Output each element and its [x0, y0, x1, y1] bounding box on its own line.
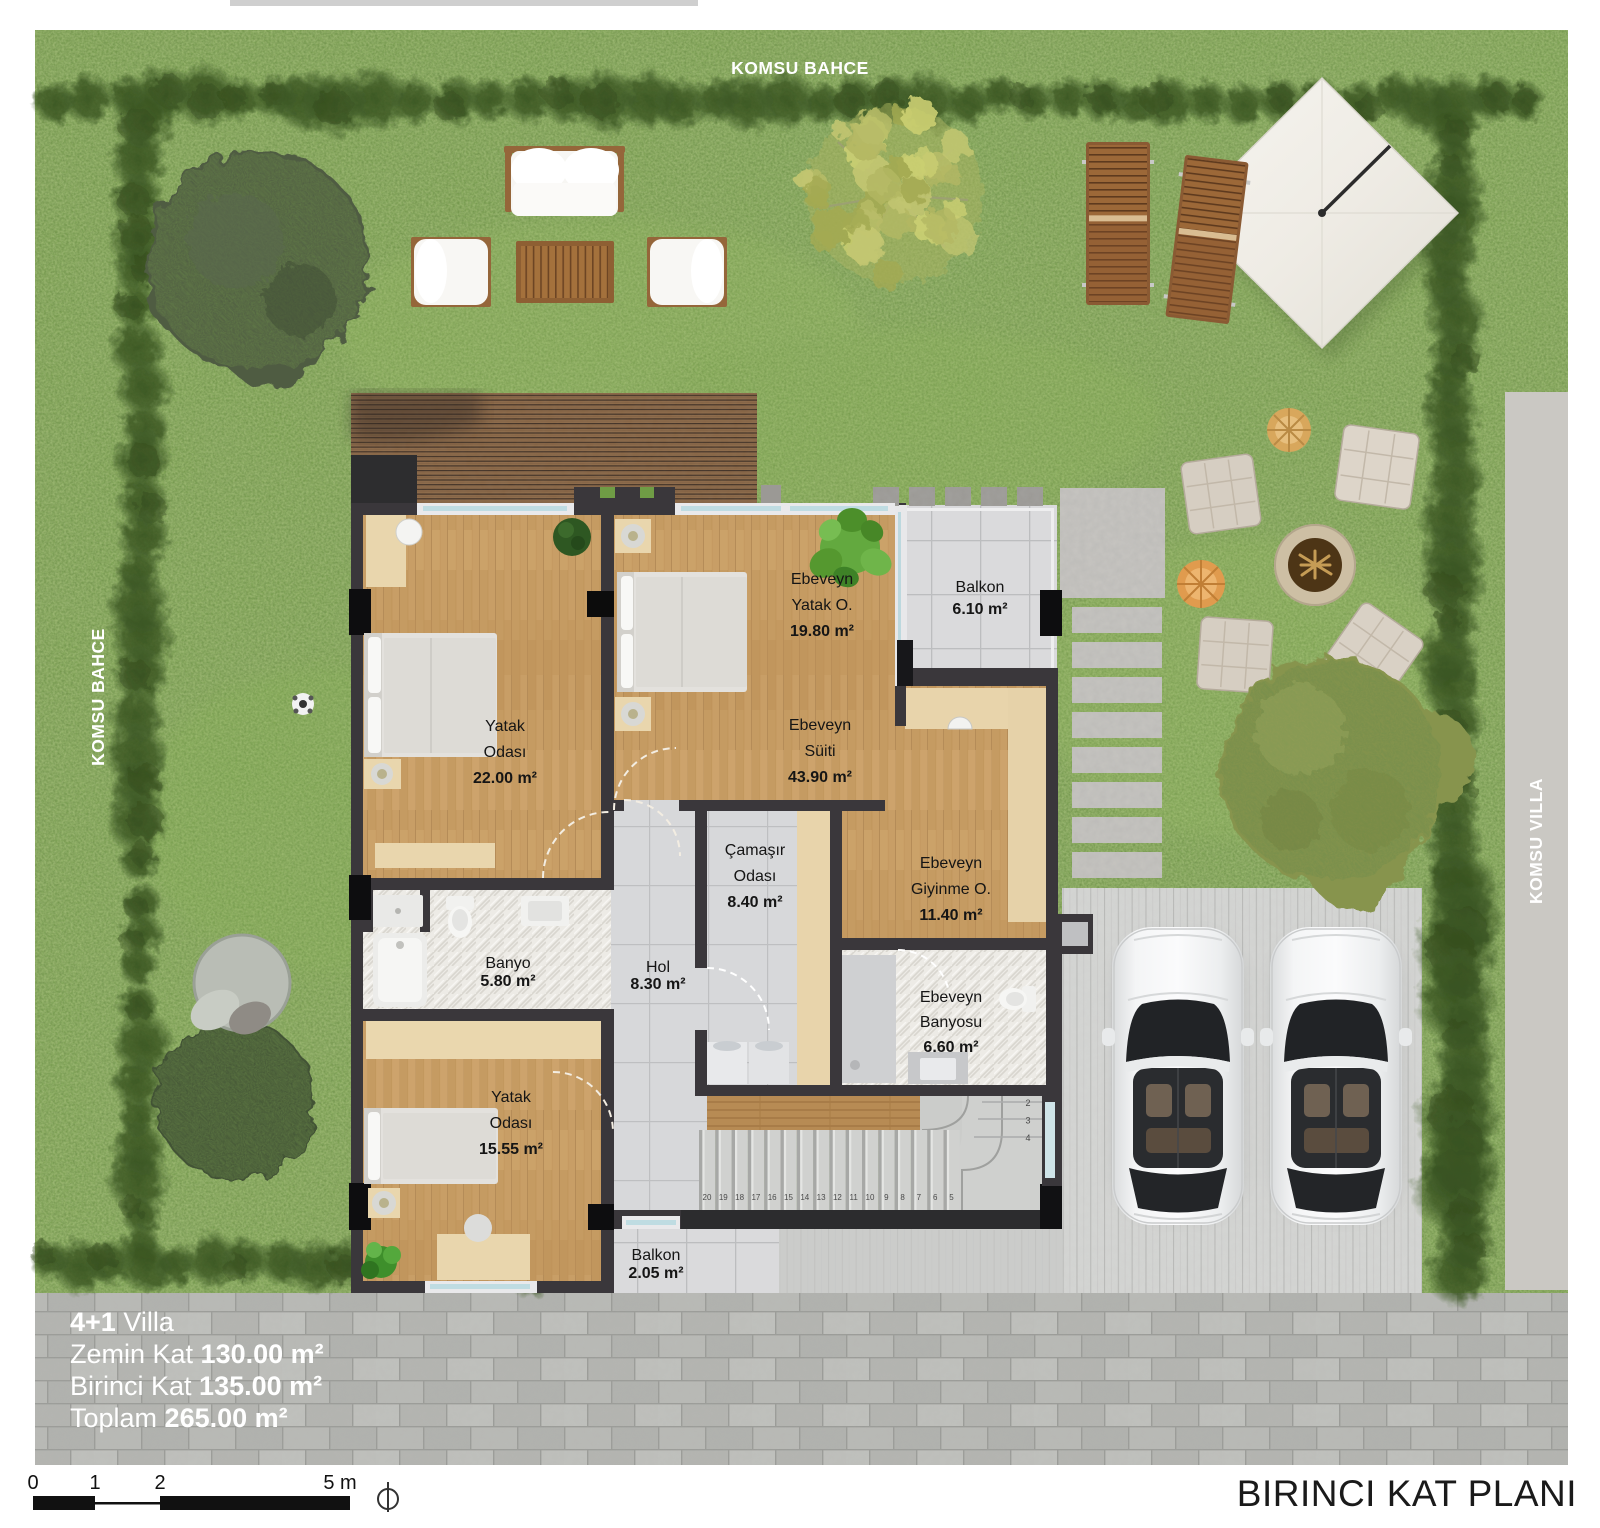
svg-text:Birinci Kat 135.00 m²: Birinci Kat 135.00 m²: [70, 1371, 322, 1401]
svg-text:11: 11: [850, 1193, 859, 1202]
svg-text:22.00 m²: 22.00 m²: [473, 770, 537, 787]
svg-text:15.55 m²: 15.55 m²: [479, 1141, 543, 1158]
svg-text:BIRINCI KAT PLANI: BIRINCI KAT PLANI: [1237, 1473, 1577, 1514]
svg-text:19.80 m²: 19.80 m²: [790, 623, 854, 640]
svg-text:20: 20: [703, 1193, 712, 1202]
svg-text:10: 10: [866, 1193, 875, 1202]
svg-text:Giyinme O.: Giyinme O.: [911, 881, 991, 898]
svg-text:5.80 m²: 5.80 m²: [480, 973, 535, 990]
svg-text:14: 14: [800, 1193, 809, 1202]
svg-text:KOMSU VILLA: KOMSU VILLA: [1526, 778, 1546, 904]
svg-text:Banyosu: Banyosu: [920, 1014, 982, 1031]
svg-text:5: 5: [949, 1193, 954, 1202]
svg-text:6: 6: [933, 1193, 938, 1202]
svg-text:Odası: Odası: [490, 1115, 533, 1132]
svg-text:9: 9: [884, 1193, 889, 1202]
svg-text:KOMSU BAHCE: KOMSU BAHCE: [731, 58, 869, 78]
svg-text:Ebeveyn: Ebeveyn: [920, 989, 982, 1006]
svg-text:Banyo: Banyo: [485, 955, 530, 972]
svg-text:Balkon: Balkon: [632, 1247, 681, 1264]
svg-text:Odası: Odası: [484, 744, 527, 761]
svg-text:Yatak: Yatak: [485, 718, 526, 735]
svg-text:11.40 m²: 11.40 m²: [919, 907, 982, 924]
svg-text:8.30 m²: 8.30 m²: [630, 976, 685, 993]
svg-text:Çamaşır: Çamaşır: [725, 842, 786, 859]
svg-text:18: 18: [735, 1193, 744, 1202]
svg-text:2: 2: [154, 1472, 165, 1494]
svg-text:Hol: Hol: [646, 959, 670, 976]
svg-text:KOMSU BAHCE: KOMSU BAHCE: [88, 628, 108, 766]
svg-text:2: 2: [1025, 1098, 1030, 1108]
svg-text:5 m: 5 m: [323, 1472, 356, 1494]
svg-text:4: 4: [1025, 1133, 1030, 1143]
svg-text:2.05 m²: 2.05 m²: [628, 1265, 683, 1282]
svg-text:19: 19: [719, 1193, 728, 1202]
svg-text:8.40 m²: 8.40 m²: [727, 894, 782, 911]
svg-text:17: 17: [751, 1193, 760, 1202]
svg-text:Ebeveyn: Ebeveyn: [791, 571, 853, 588]
svg-text:6.10 m²: 6.10 m²: [952, 601, 1007, 618]
svg-text:Yatak: Yatak: [491, 1089, 532, 1106]
svg-text:Odası: Odası: [734, 868, 777, 885]
svg-text:12: 12: [833, 1193, 842, 1202]
svg-text:Toplam 265.00 m²: Toplam 265.00 m²: [70, 1403, 288, 1433]
svg-text:3: 3: [1025, 1116, 1030, 1126]
svg-text:43.90 m²: 43.90 m²: [788, 769, 852, 786]
svg-text:0: 0: [27, 1472, 38, 1494]
svg-text:Zemin Kat 130.00 m²: Zemin Kat 130.00 m²: [70, 1339, 324, 1369]
svg-text:Süiti: Süiti: [804, 743, 835, 760]
svg-text:7: 7: [917, 1193, 922, 1202]
svg-text:16: 16: [768, 1193, 777, 1202]
svg-text:15: 15: [784, 1193, 793, 1202]
svg-text:1: 1: [89, 1472, 100, 1494]
svg-text:6.60 m²: 6.60 m²: [923, 1039, 978, 1056]
svg-text:Balkon: Balkon: [956, 579, 1005, 596]
svg-text:13: 13: [817, 1193, 826, 1202]
svg-text:Ebeveyn: Ebeveyn: [920, 855, 982, 872]
svg-text:8: 8: [900, 1193, 905, 1202]
svg-text:4+1 Villa: 4+1 Villa: [70, 1307, 175, 1337]
svg-text:Ebeveyn: Ebeveyn: [789, 717, 851, 734]
svg-text:Yatak O.: Yatak O.: [791, 597, 852, 614]
